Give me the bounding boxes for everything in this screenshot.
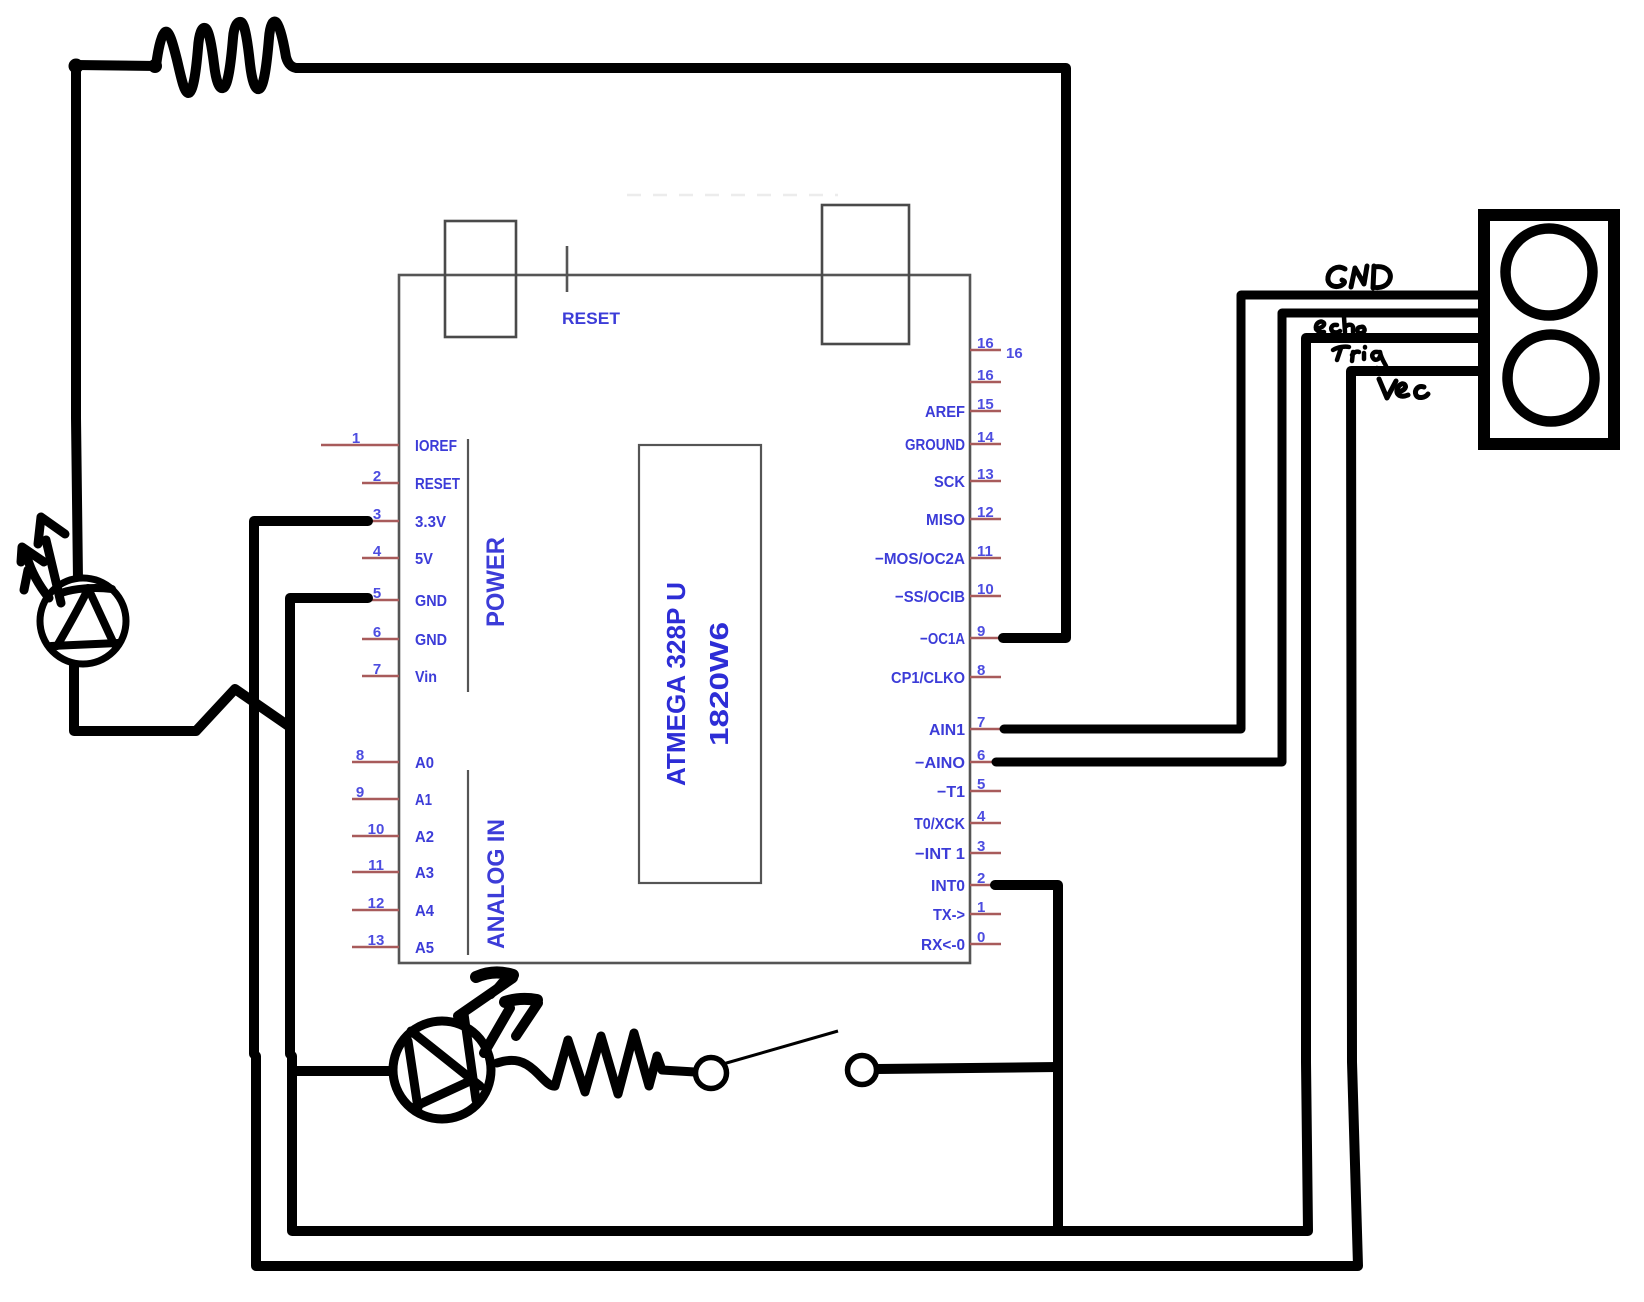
svg-text:1820W6: 1820W6 [704,622,734,746]
svg-text:−MOS/OC2A: −MOS/OC2A [875,551,965,568]
svg-text:IOREF: IOREF [415,438,457,455]
svg-text:−INT 1: −INT 1 [915,846,965,863]
svg-text:AIN1: AIN1 [929,722,965,739]
svg-text:14: 14 [977,429,994,446]
svg-text:12: 12 [368,895,385,912]
svg-text:3.3V: 3.3V [415,514,446,531]
svg-text:A3: A3 [415,865,434,882]
svg-text:8: 8 [356,747,364,764]
svg-text:SCK: SCK [934,474,965,491]
svg-text:9: 9 [977,623,985,640]
svg-text:2: 2 [977,870,985,887]
svg-text:5: 5 [373,585,381,602]
svg-text:5: 5 [977,776,985,793]
svg-text:A0: A0 [415,755,434,772]
svg-text:13: 13 [368,932,385,949]
svg-text:ANALOG IN: ANALOG IN [483,819,510,949]
svg-text:7: 7 [373,661,381,678]
svg-text:1: 1 [977,899,985,916]
svg-text:10: 10 [977,581,994,598]
svg-text:A4: A4 [415,903,434,920]
svg-text:2: 2 [373,468,381,485]
svg-text:INT0: INT0 [931,878,965,895]
svg-text:4: 4 [373,543,382,560]
svg-text:RESET: RESET [415,476,460,493]
svg-text:−OC1A: −OC1A [920,631,965,648]
svg-text:A1: A1 [415,792,432,809]
svg-text:16: 16 [977,335,994,352]
svg-text:GROUND: GROUND [905,437,965,454]
svg-text:8: 8 [977,662,985,679]
svg-text:T0/XCK: T0/XCK [914,816,965,833]
svg-text:A5: A5 [415,940,434,957]
svg-text:16: 16 [977,367,994,384]
svg-text:GND: GND [415,593,447,610]
svg-text:12: 12 [977,504,994,521]
svg-text:CP1/CLKO: CP1/CLKO [891,670,965,687]
svg-text:GND: GND [415,632,447,649]
svg-text:AREF: AREF [925,404,965,421]
svg-text:ATMEGA 328P U: ATMEGA 328P U [661,582,691,786]
svg-text:TX->: TX-> [933,907,965,924]
svg-text:15: 15 [977,396,994,413]
svg-text:A2: A2 [415,829,434,846]
svg-text:MISO: MISO [926,512,965,529]
svg-text:10: 10 [368,821,385,838]
svg-text:RX<-0: RX<-0 [921,937,965,954]
svg-text:3: 3 [373,506,381,523]
svg-text:16: 16 [1006,345,1023,362]
svg-text:1: 1 [352,430,360,447]
svg-text:−SS/OCIB: −SS/OCIB [895,589,965,606]
svg-text:POWER: POWER [482,537,510,627]
svg-text:11: 11 [368,857,384,874]
svg-text:13: 13 [977,466,994,483]
svg-text:0: 0 [977,929,985,946]
svg-text:6: 6 [977,747,985,764]
svg-text:11: 11 [977,543,993,560]
svg-text:−T1: −T1 [937,784,965,801]
svg-text:3: 3 [977,838,985,855]
svg-text:6: 6 [373,624,381,641]
svg-text:4: 4 [977,808,986,825]
svg-text:Vin: Vin [415,669,437,686]
svg-text:7: 7 [977,714,985,731]
svg-text:−AINO: −AINO [915,755,965,772]
svg-text:9: 9 [356,784,364,801]
svg-text:RESET: RESET [562,309,621,328]
svg-text:5V: 5V [415,551,433,568]
